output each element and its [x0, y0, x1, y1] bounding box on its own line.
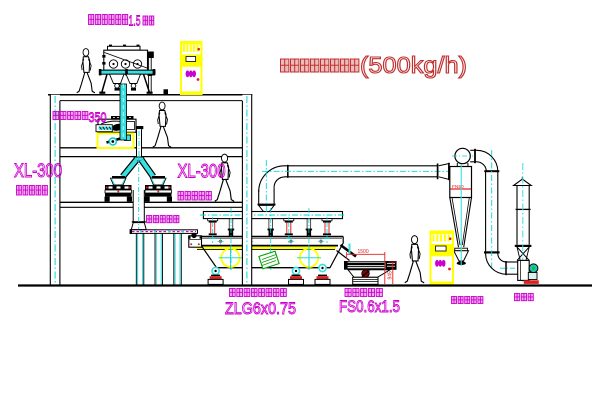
- svg-text:(500kg/h): (500kg/h): [360, 52, 467, 78]
- svg-text:XL-300: XL-300: [14, 160, 62, 182]
- svg-text:XL-300: XL-300: [178, 161, 226, 183]
- svg-text:1500: 1500: [358, 249, 369, 255]
- svg-text:945: 945: [387, 271, 393, 280]
- svg-text:1.5: 1.5: [129, 13, 141, 30]
- svg-text:ZLG6x0.75: ZLG6x0.75: [225, 299, 296, 318]
- svg-text:FS0.6x1.5: FS0.6x1.5: [339, 297, 400, 316]
- svg-text:350: 350: [89, 109, 107, 125]
